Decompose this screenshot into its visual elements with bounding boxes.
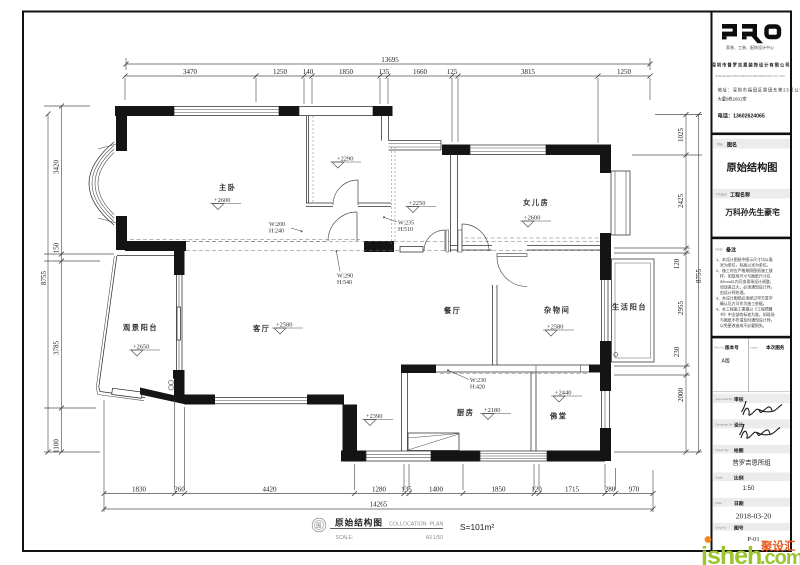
svg-text:原始结构图: 原始结构图 (727, 161, 778, 174)
svg-text:万科孙先生豪宅: 万科孙先生豪宅 (724, 207, 780, 217)
svg-text:审核: 审核 (734, 396, 744, 403)
svg-text:聚设汇: 聚设汇 (760, 539, 796, 553)
svg-text:确认后方可作为施工依据。: 确认后方可作为施工依据。 (720, 301, 767, 306)
svg-text:120: 120 (531, 486, 542, 494)
svg-text:+2440: +2440 (555, 390, 571, 397)
svg-text:135: 135 (401, 486, 412, 494)
svg-text:150: 150 (53, 242, 61, 253)
svg-text:样，如现场尺寸与图纸尺寸在: 样，如现场尺寸与图纸尺寸在 (720, 274, 771, 279)
svg-text:备注: 备注 (725, 247, 736, 254)
svg-text:3420: 3420 (53, 160, 61, 175)
svg-text:1、本设计图纸中图示尺寸均以毫: 1、本设计图纸中图示尺寸均以毫 (716, 257, 773, 262)
svg-text:+2600: +2600 (524, 215, 540, 222)
svg-text:+2650: +2650 (133, 344, 149, 351)
svg-text:1250: 1250 (273, 68, 288, 76)
svg-text:如误差过大，必须通知设计师，: 如误差过大，必须通知设计师， (720, 285, 774, 290)
svg-text:4、本工程施工需遵以《工程预算: 4、本工程施工需遵以《工程预算 (716, 307, 773, 312)
svg-text:客厅: 客厅 (252, 324, 271, 333)
svg-text:图号: 图号 (734, 525, 744, 532)
svg-text:3815: 3815 (521, 68, 536, 76)
svg-text:工程名称: 工程名称 (730, 192, 750, 199)
svg-text:120: 120 (673, 258, 681, 269)
svg-text:8755: 8755 (695, 269, 703, 284)
svg-text:H:510: H:510 (398, 227, 413, 233)
svg-text:深圳市普罗吉恩装饰设计有限公司: 深圳市普罗吉恩装饰设计有限公司 (712, 62, 791, 69)
svg-text:与图纸不符请及时通知设计师，: 与图纸不符请及时通知设计师， (720, 318, 774, 323)
svg-text:S=101m²: S=101m² (460, 522, 494, 532)
svg-text:版本号: 版本号 (725, 344, 739, 351)
svg-text:A3 1/50: A3 1/50 (426, 535, 443, 541)
svg-text:原始结构图: 原始结构图 (335, 517, 383, 528)
svg-text:生活阳台: 生活阳台 (612, 303, 647, 312)
svg-text:W:200: W:200 (269, 222, 285, 228)
svg-text:970: 970 (629, 486, 640, 494)
svg-text:图: 图 (316, 522, 322, 530)
svg-text:杂物间: 杂物间 (544, 306, 570, 315)
svg-text:H:540: H:540 (337, 280, 352, 286)
svg-text:普罗吉恩所组: 普罗吉恩所组 (732, 458, 771, 467)
svg-text:1400: 1400 (429, 486, 444, 494)
svg-text:230: 230 (673, 346, 681, 357)
svg-text:280: 280 (605, 486, 616, 494)
svg-text:+2600: +2600 (214, 197, 230, 204)
svg-text:主卧: 主卧 (219, 183, 237, 192)
svg-text:佛堂: 佛堂 (549, 412, 568, 421)
svg-text:Dwg No.: Dwg No. (716, 526, 728, 530)
svg-text:SCALE:: SCALE: (336, 535, 354, 541)
svg-text:女儿房: 女儿房 (523, 198, 549, 207)
svg-text:2955: 2955 (677, 301, 685, 316)
svg-text:3、本设计图纸必须经过甲方签字: 3、本设计图纸必须经过甲方签字 (716, 296, 773, 301)
svg-text:Project: Project (717, 193, 728, 197)
svg-text:绘图: 绘图 (733, 447, 744, 454)
svg-text:电话：13602624065: 电话：13602624065 (718, 112, 765, 120)
svg-text:Note: Note (716, 248, 723, 252)
svg-text:Designed By: Designed By (716, 423, 734, 427)
svg-text:+2250: +2250 (409, 200, 425, 207)
svg-text:2、施工时应严格按照图纸施工放: 2、施工时应严格按照图纸施工放 (716, 268, 773, 273)
svg-text:W:235: W:235 (398, 221, 414, 227)
svg-text:1660: 1660 (413, 68, 428, 76)
svg-text:+2580: +2580 (547, 324, 563, 331)
svg-text:3470: 3470 (183, 68, 198, 76)
svg-text:13695: 13695 (381, 56, 399, 64)
svg-text:日期: 日期 (734, 500, 744, 507)
svg-text:以免更改造成不必要损失。: 以免更改造成不必要损失。 (720, 323, 767, 328)
svg-text:50mm以内可由现场设计调整，: 50mm以内可由现场设计调整， (720, 279, 774, 284)
svg-text:由设计师处理。: 由设计师处理。 (720, 290, 747, 295)
svg-text:1025: 1025 (677, 128, 685, 143)
svg-text:3785: 3785 (53, 341, 61, 356)
svg-text:+2390: +2390 (366, 413, 382, 420)
svg-text:8755: 8755 (40, 271, 48, 286)
svg-text:图名: 图名 (727, 142, 737, 149)
svg-text:书》中全部的标准为准，如现场: 书》中全部的标准为准，如现场 (720, 312, 775, 317)
svg-text:135: 135 (379, 68, 390, 76)
svg-text:1:50: 1:50 (743, 486, 755, 492)
svg-text:地址：深圳市福田区景田东第23号公馆: 地址：深圳市福田区景田东第23号公馆 (718, 87, 800, 94)
svg-text:W:230: W:230 (470, 378, 486, 384)
svg-text:jsheh: jsheh (700, 542, 761, 565)
svg-text:观景阳台: 观景阳台 (123, 323, 158, 332)
svg-text:COLLOCATION PLAN: COLLOCATION PLAN (389, 522, 444, 528)
svg-text:SHENZHEN PRO-DESIGN DECORATION: SHENZHEN PRO-DESIGN DECORATION CO.,LTD (715, 74, 785, 78)
svg-text:设计: 设计 (734, 422, 744, 429)
svg-text:+2290: +2290 (337, 156, 353, 163)
svg-text:1280: 1280 (372, 486, 387, 494)
svg-text:+2580: +2580 (276, 322, 292, 329)
svg-text:2000: 2000 (677, 388, 685, 403)
svg-text:1830: 1830 (132, 486, 147, 494)
svg-text:Approved By: Approved By (716, 397, 734, 401)
svg-text:米为单位，标高以米为单位。: 米为单位，标高以米为单位。 (720, 263, 771, 268)
svg-text:A版: A版 (722, 358, 730, 365)
svg-text:1100: 1100 (53, 439, 61, 453)
svg-text:2018-03-20: 2018-03-20 (736, 512, 772, 521)
svg-text:1715: 1715 (565, 486, 580, 494)
svg-text:H:240: H:240 (269, 229, 284, 235)
svg-text:Issue: Issue (751, 346, 759, 350)
svg-text:Scale: Scale (716, 475, 724, 479)
svg-text:大厦9栋1601室: 大厦9栋1601室 (718, 96, 748, 103)
svg-text:1850: 1850 (339, 68, 354, 76)
svg-text:比例: 比例 (734, 474, 744, 481)
svg-text:本次图务: 本次图务 (765, 344, 785, 351)
svg-text:1250: 1250 (617, 68, 632, 76)
svg-text:140: 140 (303, 68, 314, 76)
svg-text:260: 260 (174, 486, 185, 494)
svg-text:Rev No.: Rev No. (715, 346, 726, 350)
svg-text:1850: 1850 (492, 486, 507, 494)
svg-text:W:290: W:290 (337, 274, 353, 280)
svg-text:Date: Date (716, 501, 723, 505)
svg-text:Title: Title (717, 143, 723, 147)
svg-text:H:420: H:420 (470, 385, 485, 391)
svg-text:餐厅: 餐厅 (443, 306, 462, 315)
svg-text:125: 125 (447, 68, 458, 76)
svg-text:厨房: 厨房 (457, 408, 475, 417)
svg-text:2425: 2425 (677, 194, 685, 209)
svg-text:4420: 4420 (263, 486, 278, 494)
svg-text:14265: 14265 (370, 501, 388, 509)
svg-text:家装、工装、配饰设计中心: 家装、工装、配饰设计中心 (726, 44, 774, 50)
svg-text:+2180: +2180 (484, 407, 500, 414)
svg-text:Drawn By: Drawn By (716, 448, 730, 452)
